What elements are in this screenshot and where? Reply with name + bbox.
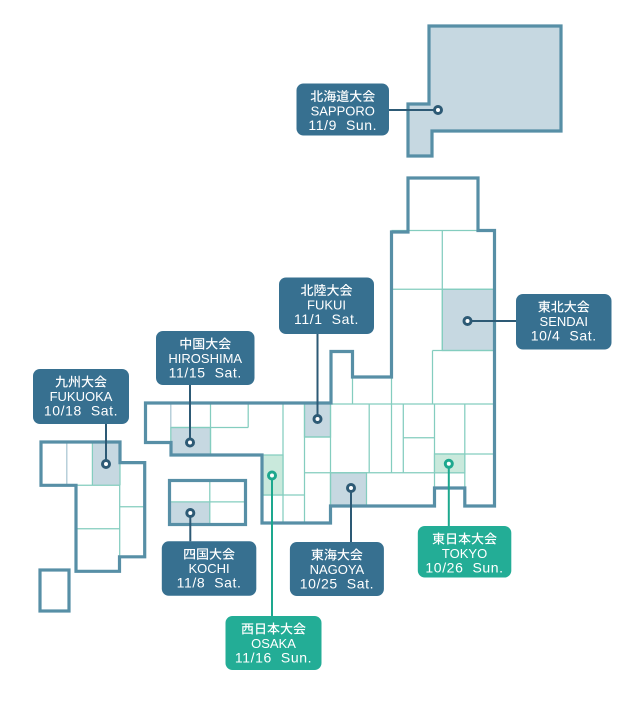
svg-text:11/8 Sat.: 11/8 Sat. — [177, 575, 242, 591]
svg-text:10/25 Sat.: 10/25 Sat. — [300, 575, 374, 591]
svg-text:11/15 Sat.: 11/15 Sat. — [169, 364, 242, 380]
svg-text:11/9 Sun.: 11/9 Sun. — [308, 117, 377, 133]
svg-text:10/4 Sat.: 10/4 Sat. — [531, 327, 597, 343]
svg-text:11/1 Sat.: 11/1 Sat. — [294, 311, 359, 327]
svg-text:10/26 Sun.: 10/26 Sun. — [425, 559, 503, 575]
svg-text:11/16 Sun.: 11/16 Sun. — [235, 649, 312, 665]
svg-text:10/18 Sat.: 10/18 Sat. — [44, 402, 118, 418]
